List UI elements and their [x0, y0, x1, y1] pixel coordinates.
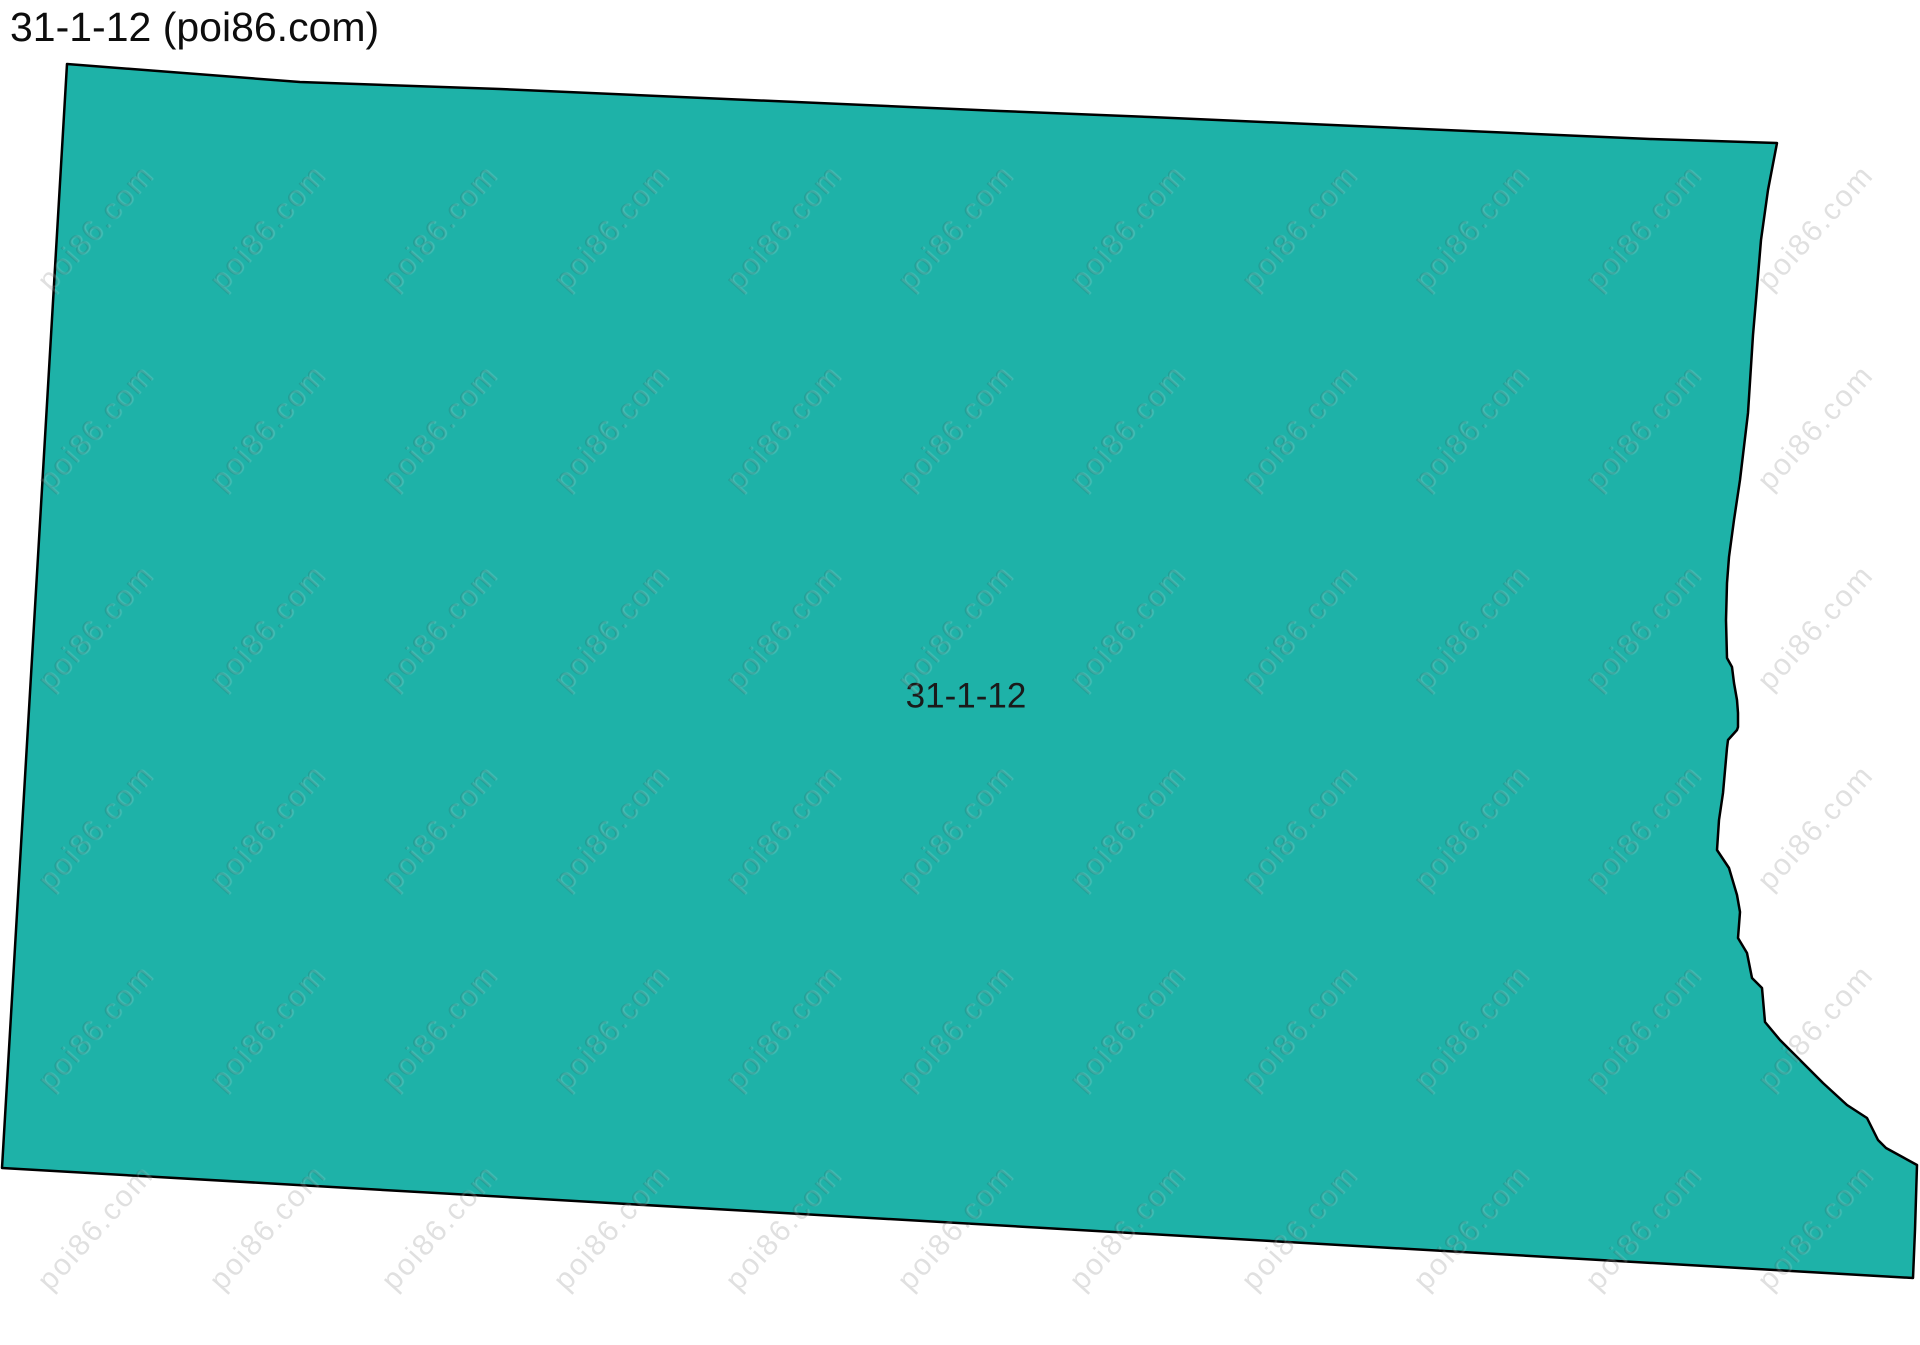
- page-title: 31-1-12 (poi86.com): [10, 4, 379, 51]
- region-map-svg: 31-1-12: [0, 0, 1920, 1345]
- region-label: 31-1-12: [906, 677, 1027, 716]
- region-polygon: [2, 64, 1917, 1278]
- map-page: 31-1-12 (poi86.com) 31-1-12 poi86.compoi…: [0, 0, 1920, 1345]
